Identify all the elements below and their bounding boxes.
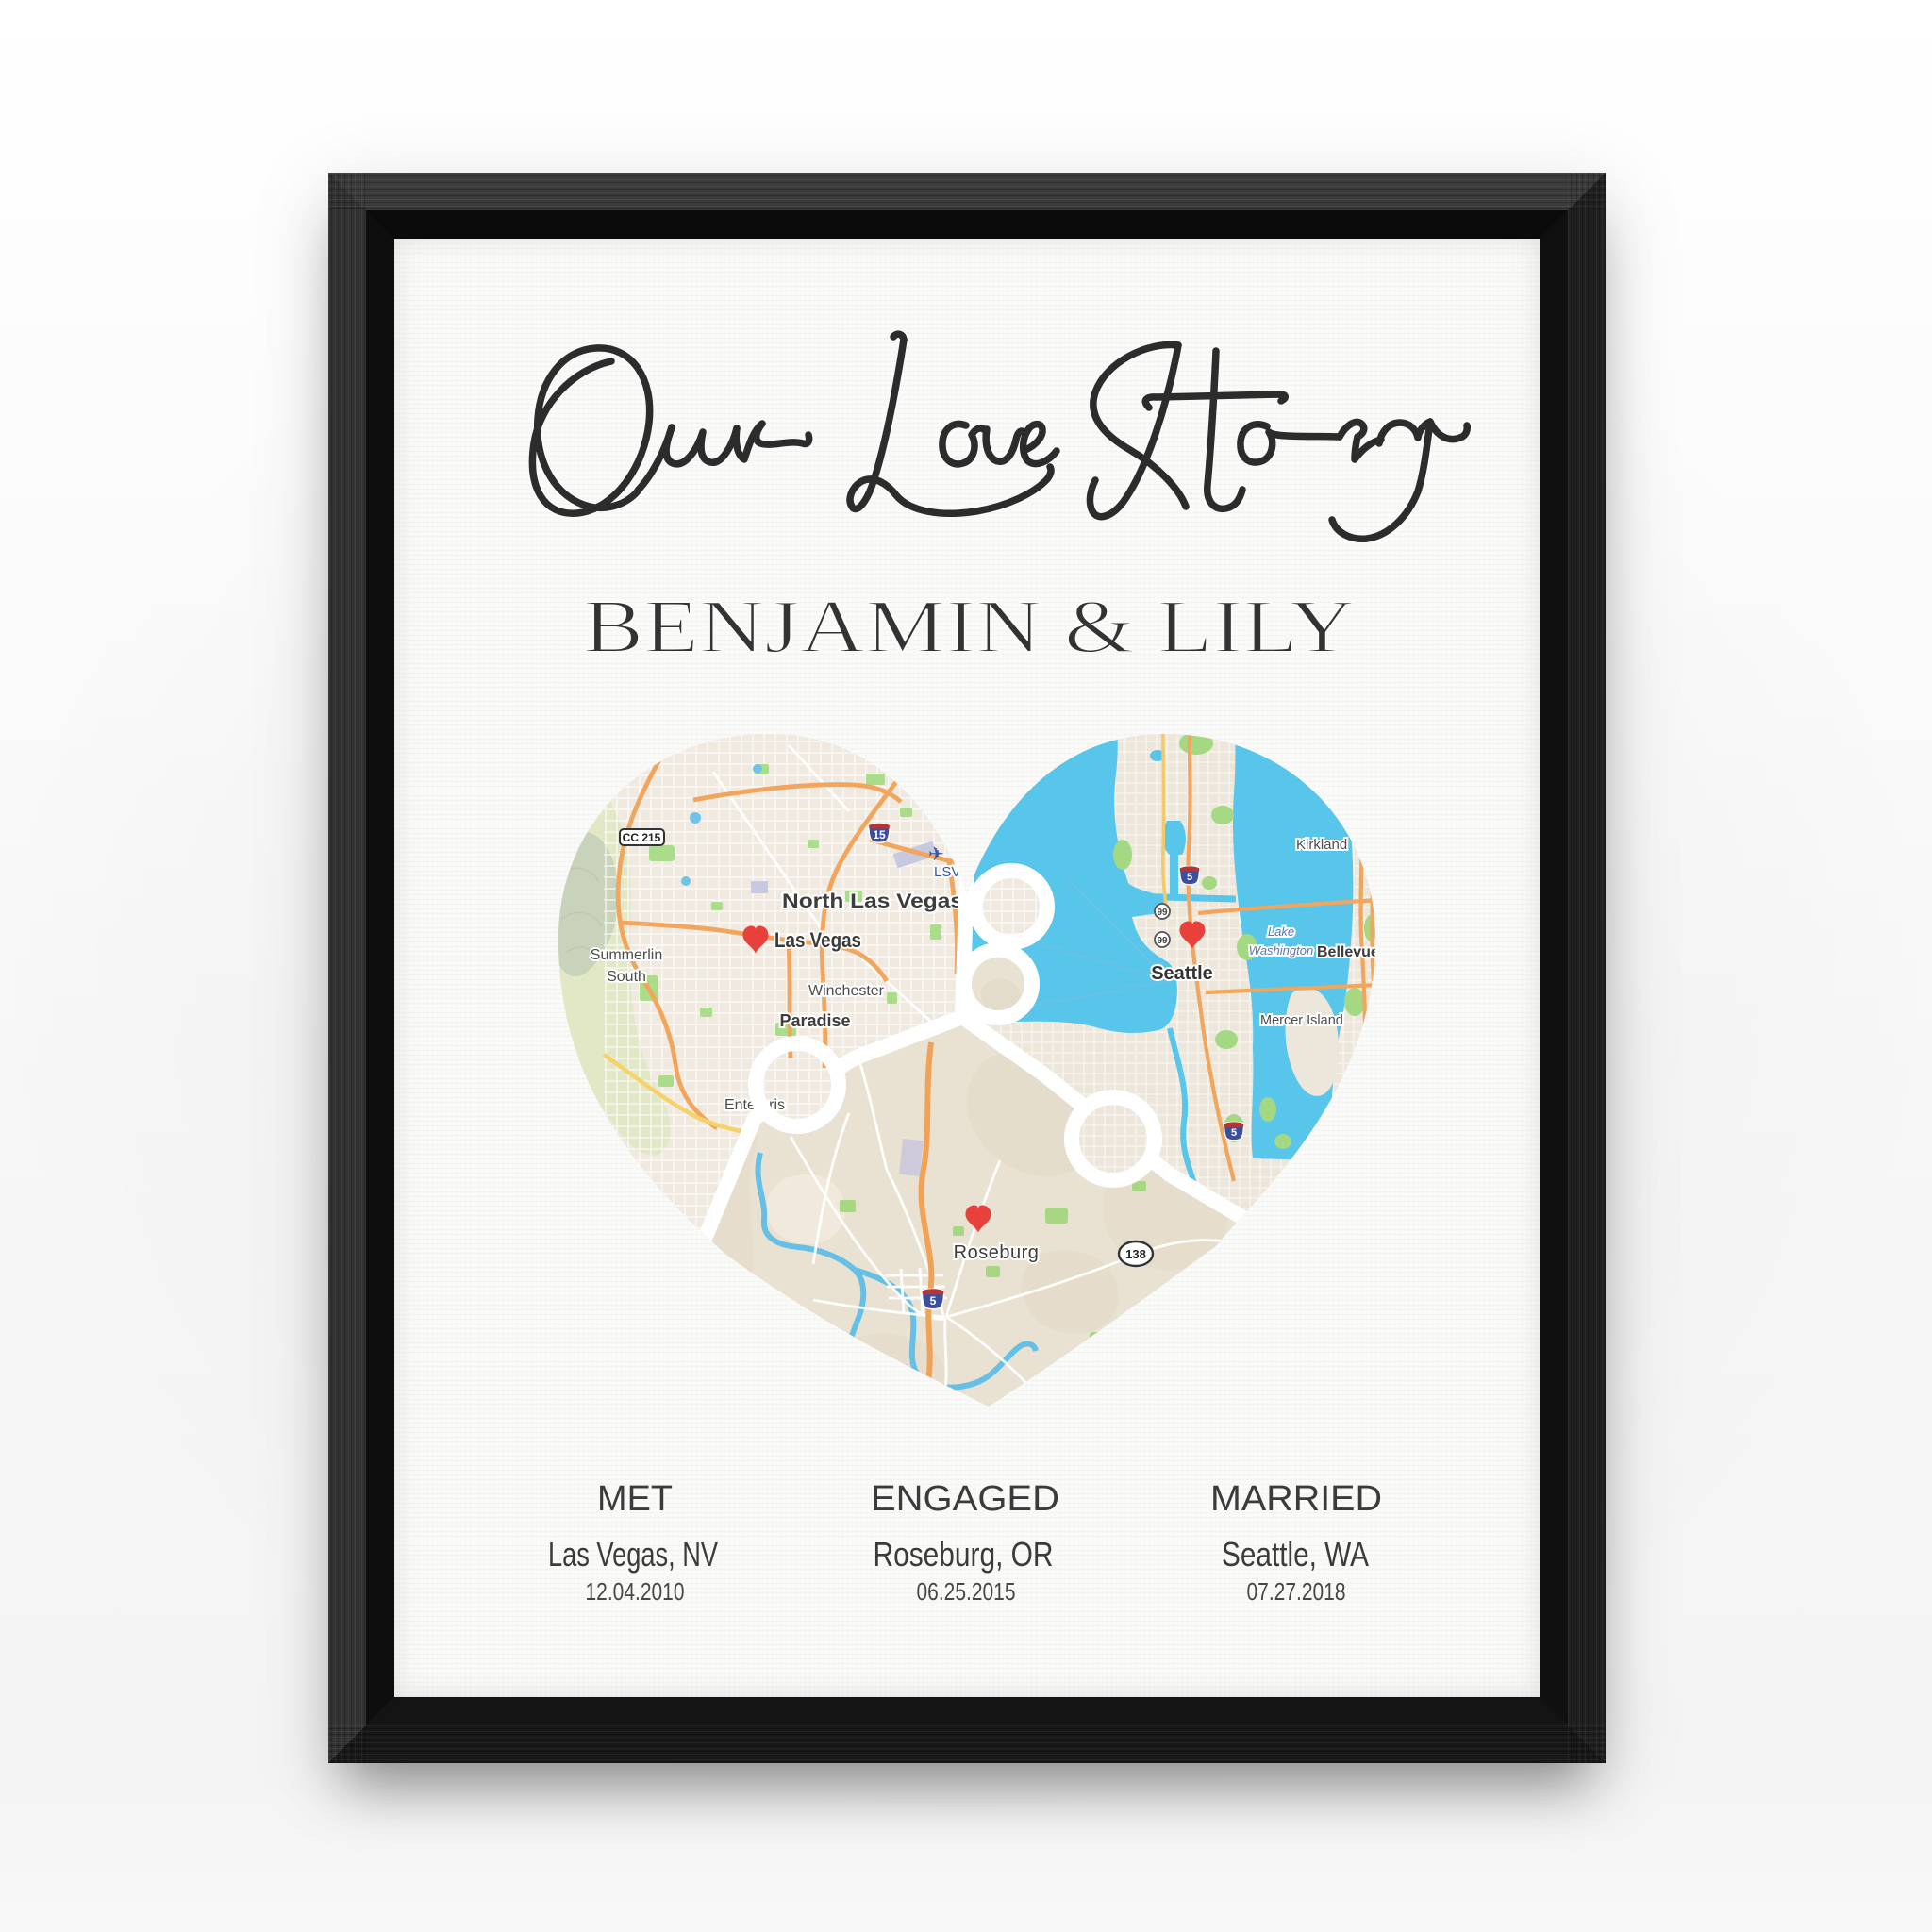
- svg-text:North Las Vegas: North Las Vegas: [782, 891, 963, 912]
- svg-text:BENJAMIN & LILY: BENJAMIN & LILY: [583, 586, 1355, 669]
- svg-text:CC 215: CC 215: [623, 831, 661, 844]
- svg-text:5: 5: [1187, 872, 1192, 883]
- svg-text:99: 99: [1157, 908, 1168, 918]
- svg-text:MET: MET: [597, 1479, 673, 1519]
- svg-text:Washington: Washington: [1249, 943, 1313, 958]
- svg-text:Winchester: Winchester: [808, 983, 885, 999]
- svg-text:5: 5: [1231, 1127, 1237, 1139]
- svg-text:Las Vegas, NV: Las Vegas, NV: [548, 1535, 718, 1574]
- svg-text:South: South: [607, 969, 646, 985]
- svg-text:138: 138: [1125, 1247, 1146, 1261]
- svg-text:Kirkland: Kirkland: [1296, 837, 1347, 853]
- svg-text:99: 99: [1157, 936, 1168, 946]
- svg-text:5: 5: [930, 1294, 937, 1307]
- svg-text:07.27.2018: 07.27.2018: [1247, 1577, 1346, 1606]
- svg-text:Roseburg: Roseburg: [954, 1242, 1040, 1263]
- svg-text:Bellevue: Bellevue: [1317, 944, 1379, 960]
- svg-text:Lake: Lake: [1268, 924, 1294, 939]
- svg-text:Seattle: Seattle: [1151, 963, 1213, 984]
- svg-text:✈: ✈: [928, 844, 944, 865]
- svg-text:06.25.2015: 06.25.2015: [917, 1577, 1016, 1606]
- svg-text:ENGAGED: ENGAGED: [871, 1479, 1059, 1519]
- svg-text:Las Vegas: Las Vegas: [774, 928, 861, 952]
- svg-text:Paradise: Paradise: [779, 1011, 850, 1030]
- svg-text:Summerlin: Summerlin: [591, 947, 662, 963]
- svg-text:LSV: LSV: [934, 864, 960, 880]
- svg-text:12.04.2010: 12.04.2010: [586, 1577, 685, 1606]
- svg-text:MARRIED: MARRIED: [1210, 1479, 1382, 1519]
- svg-text:Mercer Island: Mercer Island: [1260, 1013, 1343, 1028]
- svg-text:Seattle, WA: Seattle, WA: [1222, 1535, 1369, 1574]
- svg-text:Roseburg, OR: Roseburg, OR: [874, 1535, 1054, 1574]
- svg-text:15: 15: [873, 828, 886, 841]
